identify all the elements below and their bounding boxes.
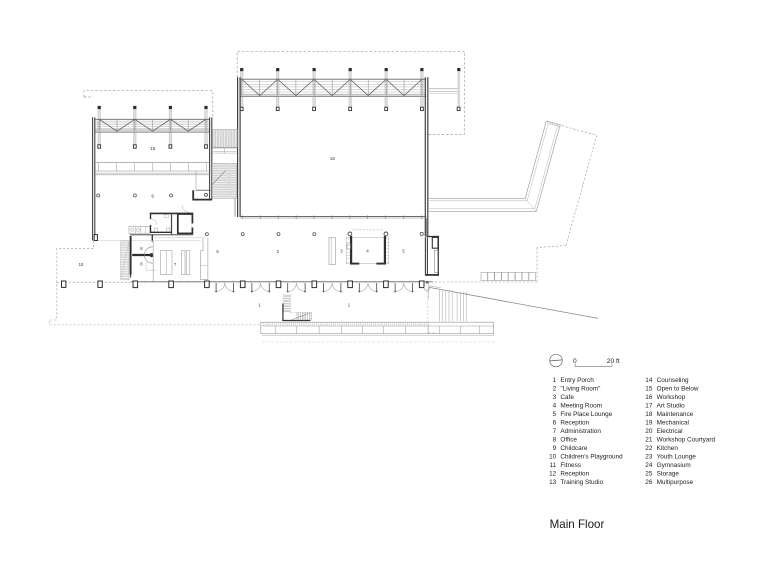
svg-text:Entry Porch: Entry Porch [560,377,594,384]
svg-text:23: 23 [645,454,653,461]
svg-text:17: 17 [645,403,653,410]
svg-text:Childcare: Childcare [560,445,587,452]
svg-text:"Living Room": "Living Room" [560,386,600,393]
svg-text:10: 10 [549,454,557,461]
svg-text:Workshop: Workshop [657,394,686,401]
svg-text:Training Studio: Training Studio [560,479,603,486]
svg-text:Administration: Administration [560,428,601,435]
svg-text:15: 15 [330,156,336,161]
svg-text:Main Floor: Main Floor [550,518,605,531]
svg-text:Reception: Reception [560,471,589,478]
svg-text:25: 25 [645,471,653,478]
svg-text:5: 5 [553,411,557,418]
svg-text:19: 19 [645,420,653,427]
svg-text:Maintenance: Maintenance [657,411,694,418]
svg-text:15: 15 [150,146,156,151]
svg-text:Reception: Reception [560,420,589,427]
svg-text:7: 7 [553,428,557,435]
svg-text:Open to Below: Open to Below [657,386,699,393]
svg-text:20: 20 [645,428,653,435]
svg-text:26: 26 [645,479,653,486]
svg-text:Multipurpose: Multipurpose [657,479,694,486]
svg-text:24: 24 [645,462,653,469]
svg-text:9: 9 [553,445,557,452]
svg-text:12: 12 [549,471,557,478]
svg-text:Fitness: Fitness [560,462,581,469]
svg-text:11: 11 [550,462,557,469]
svg-text:4: 4 [553,403,557,410]
svg-text:6: 6 [553,420,557,427]
svg-text:Office: Office [560,437,577,444]
svg-text:10: 10 [79,262,84,267]
svg-text:1: 1 [553,377,557,384]
svg-text:15: 15 [645,386,653,393]
svg-text:Gymnasium: Gymnasium [657,462,691,469]
svg-text:Youth Lounge: Youth Lounge [657,454,697,461]
svg-text:Fire Place Lounge: Fire Place Lounge [560,411,612,418]
svg-text:Storage: Storage [657,471,680,478]
svg-text:8: 8 [553,437,557,444]
svg-text:2: 2 [553,386,557,393]
svg-text:14: 14 [645,377,653,384]
svg-text:Meeting Room: Meeting Room [560,403,602,410]
svg-text:Electrical: Electrical [657,428,683,435]
svg-text:13: 13 [549,479,557,486]
svg-text:20 ft: 20 ft [607,358,620,365]
svg-text:Mechanical: Mechanical [657,420,689,427]
svg-text:18: 18 [645,411,653,418]
svg-text:Art Studio: Art Studio [657,403,686,410]
svg-text:Workshop Courtyard: Workshop Courtyard [657,437,716,444]
svg-text:16: 16 [645,394,653,401]
svg-text:22: 22 [645,445,653,452]
svg-text:Counseling: Counseling [657,377,689,384]
svg-text:3: 3 [553,394,557,401]
svg-text:Children's Playground: Children's Playground [560,454,623,461]
svg-text:Cafe: Cafe [560,394,574,401]
svg-text:21: 21 [645,437,653,444]
svg-text:Kitchen: Kitchen [657,445,679,452]
